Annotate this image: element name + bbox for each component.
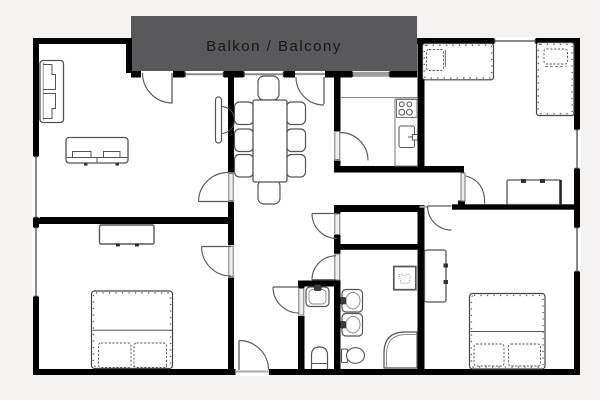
svg-text:Balkon / Balcony: Balkon / Balcony	[206, 38, 342, 55]
